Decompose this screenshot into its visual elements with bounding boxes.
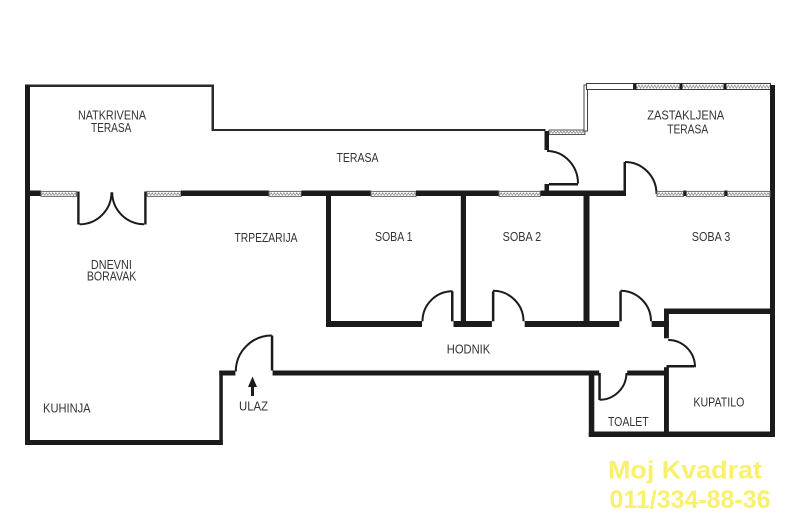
svg-text:HODNIK: HODNIK (447, 341, 491, 356)
svg-text:TRPEZARIJA: TRPEZARIJA (235, 230, 298, 245)
svg-text:SOBA 2: SOBA 2 (503, 229, 542, 244)
svg-text:ZASTAKLJENA: ZASTAKLJENA (647, 108, 724, 123)
svg-text:TERASA: TERASA (667, 121, 708, 136)
svg-text:BORAVAK: BORAVAK (87, 269, 137, 284)
svg-text:Moj Kvadrat: Moj Kvadrat (608, 457, 763, 485)
svg-text:TERASA: TERASA (91, 120, 132, 135)
svg-text:KUPATILO: KUPATILO (693, 395, 744, 410)
svg-text:TERASA: TERASA (337, 150, 379, 165)
svg-text:TOALET: TOALET (608, 414, 649, 429)
svg-text:011/334-88-36: 011/334-88-36 (610, 486, 771, 514)
svg-text:KUHINJA: KUHINJA (43, 401, 91, 416)
svg-text:ULAZ: ULAZ (239, 398, 268, 413)
svg-text:SOBA 1: SOBA 1 (375, 229, 413, 244)
svg-text:SOBA 3: SOBA 3 (692, 229, 731, 244)
